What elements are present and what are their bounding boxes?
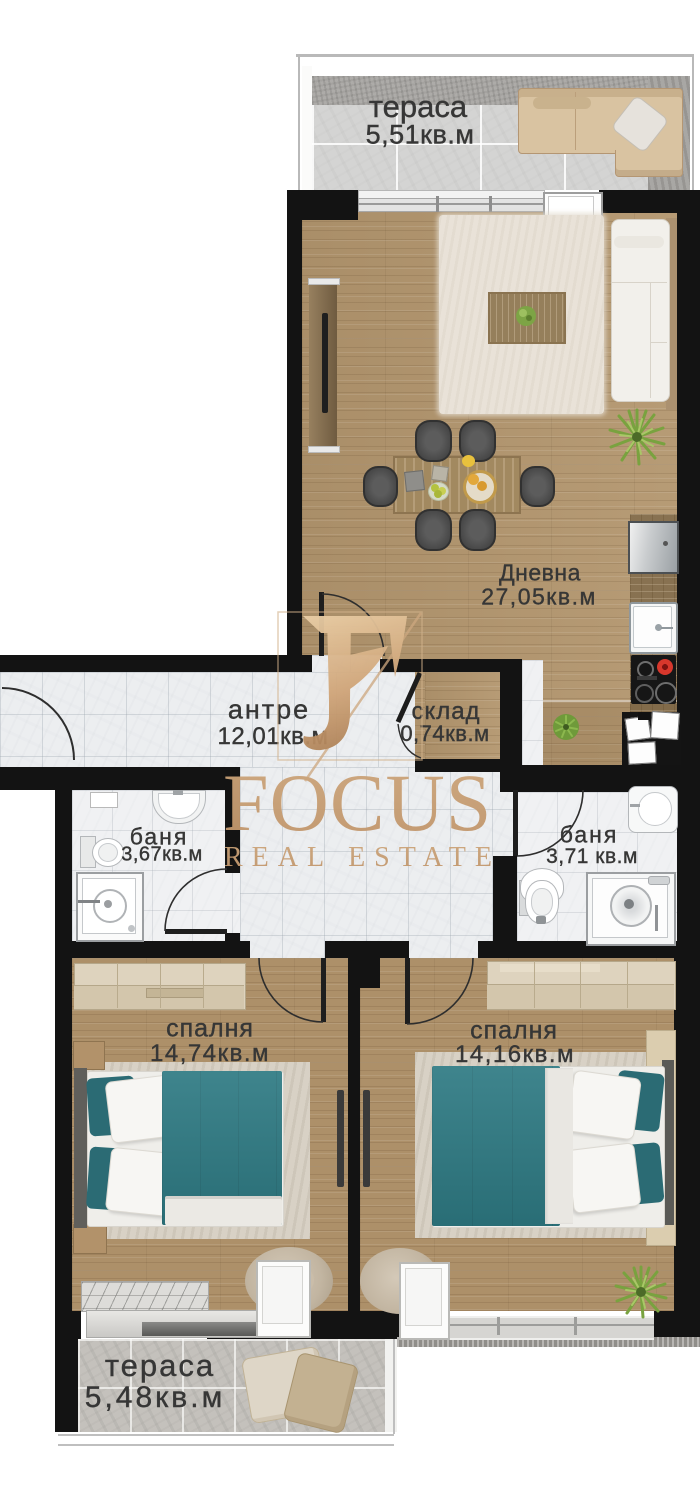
svg-text:REAL ESTATE: REAL ESTATE xyxy=(224,842,501,873)
svg-text:FOCUS: FOCUS xyxy=(223,757,492,848)
